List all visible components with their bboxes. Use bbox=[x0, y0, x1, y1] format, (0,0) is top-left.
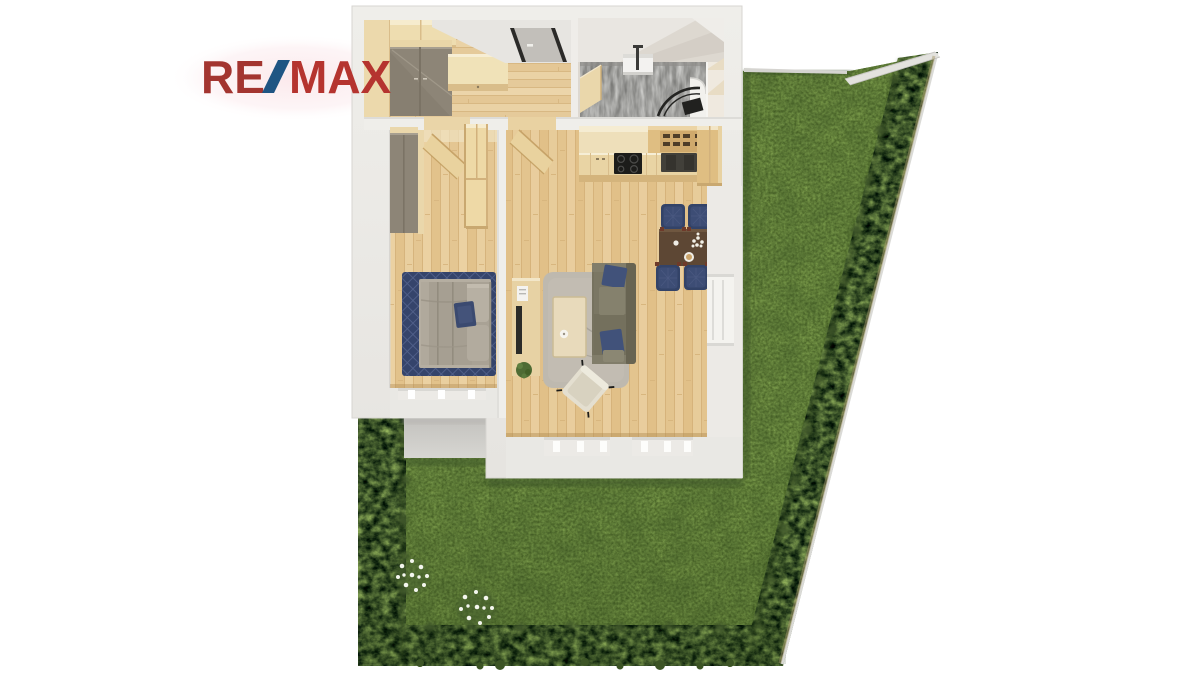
svg-text:MAX: MAX bbox=[289, 51, 392, 103]
svg-text:RE: RE bbox=[201, 51, 265, 103]
